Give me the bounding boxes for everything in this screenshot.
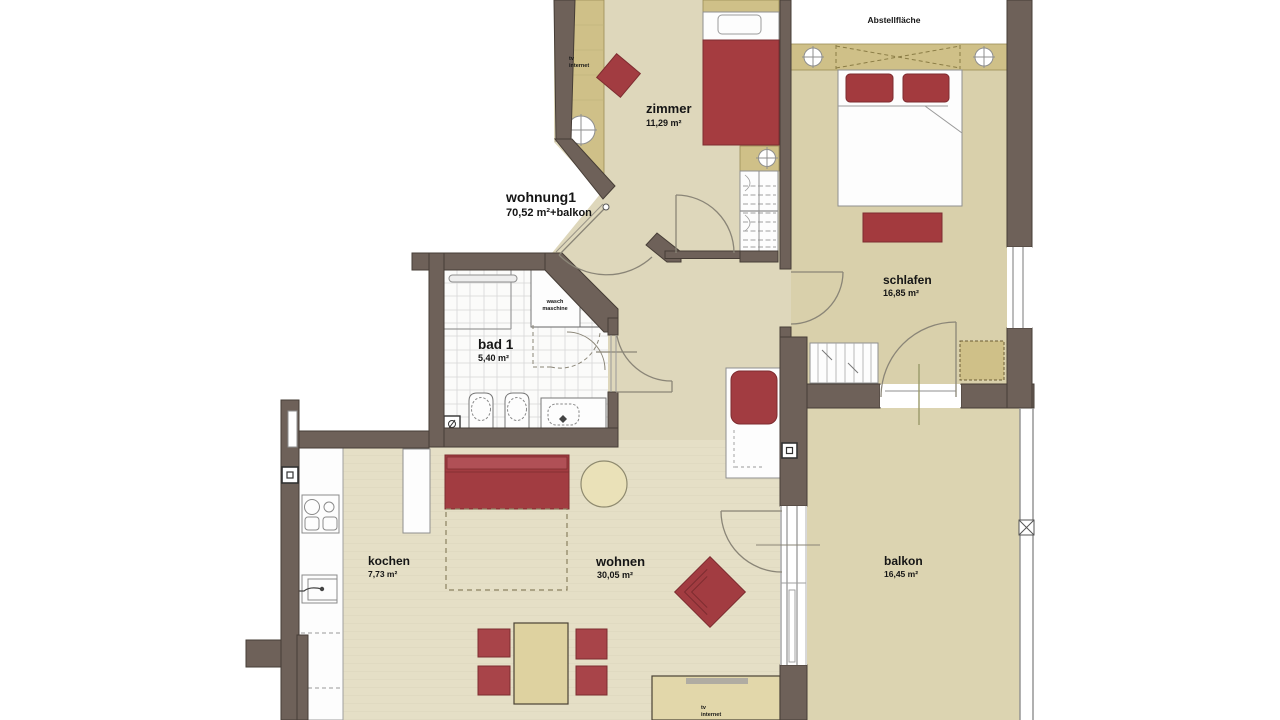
svg-text:kochen: kochen xyxy=(368,554,410,568)
svg-text:zimmer: zimmer xyxy=(646,101,692,116)
svg-text:30,05 m²: 30,05 m² xyxy=(597,570,633,580)
svg-text:internet: internet xyxy=(701,712,721,718)
svg-text:16,45 m²: 16,45 m² xyxy=(884,569,918,579)
svg-text:Abstellfläche: Abstellfläche xyxy=(868,15,921,25)
svg-text:16,85 m²: 16,85 m² xyxy=(883,288,919,298)
svg-text:5,40 m²: 5,40 m² xyxy=(478,353,509,363)
svg-text:11,29 m²: 11,29 m² xyxy=(646,118,682,128)
svg-text:wasch: wasch xyxy=(546,299,564,305)
svg-text:70,52 m²+balkon: 70,52 m²+balkon xyxy=(506,207,592,219)
svg-text:internet: internet xyxy=(569,63,589,69)
svg-text:7,73 m²: 7,73 m² xyxy=(368,569,397,579)
svg-text:wohnung1: wohnung1 xyxy=(505,189,576,205)
svg-text:wohnen: wohnen xyxy=(595,554,645,569)
svg-text:maschine: maschine xyxy=(542,306,567,312)
svg-text:balkon: balkon xyxy=(884,554,923,568)
svg-text:bad 1: bad 1 xyxy=(478,337,514,352)
svg-text:schlafen: schlafen xyxy=(883,273,932,287)
